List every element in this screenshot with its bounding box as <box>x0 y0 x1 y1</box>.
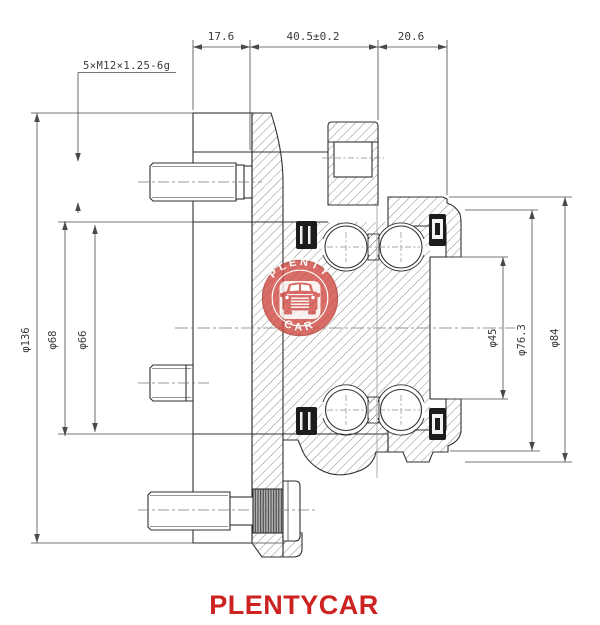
hub-bottom-lobe <box>283 434 388 475</box>
dim-label-ring-od: φ84 <box>549 329 561 348</box>
stud-knurl <box>253 489 283 533</box>
thread-callout-label: 5×M12×1.25-6g <box>83 60 170 72</box>
dim-label-bore: φ45 <box>487 329 499 348</box>
seal <box>296 221 317 249</box>
dim-label-flange-od: φ136 <box>20 327 32 352</box>
dim-label-outboard-width: 20.6 <box>398 30 425 43</box>
dim-label-bearing-width: 40.5±0.2 <box>287 30 340 43</box>
stud-head <box>283 481 300 541</box>
dim-label-pilot-68: φ68 <box>47 331 59 350</box>
dim-label-race-od: φ76.3 <box>516 324 528 356</box>
seal <box>296 407 317 435</box>
boss-bore-window <box>334 142 372 177</box>
hub-bearing-technical-drawing: 17.6 40.5±0.2 20.6 5×M12×1.25-6g <box>0 0 600 625</box>
dim-label-flange-offset: 17.6 <box>208 30 235 43</box>
plentycar-stamp: PLENTY CAR <box>263 256 338 336</box>
dim-right-diameters: φ45 φ76.3 φ84 <box>448 197 572 462</box>
dim-label-pilot-66: φ66 <box>77 331 89 350</box>
brand-footer-text: PLENTYCAR <box>0 590 588 621</box>
